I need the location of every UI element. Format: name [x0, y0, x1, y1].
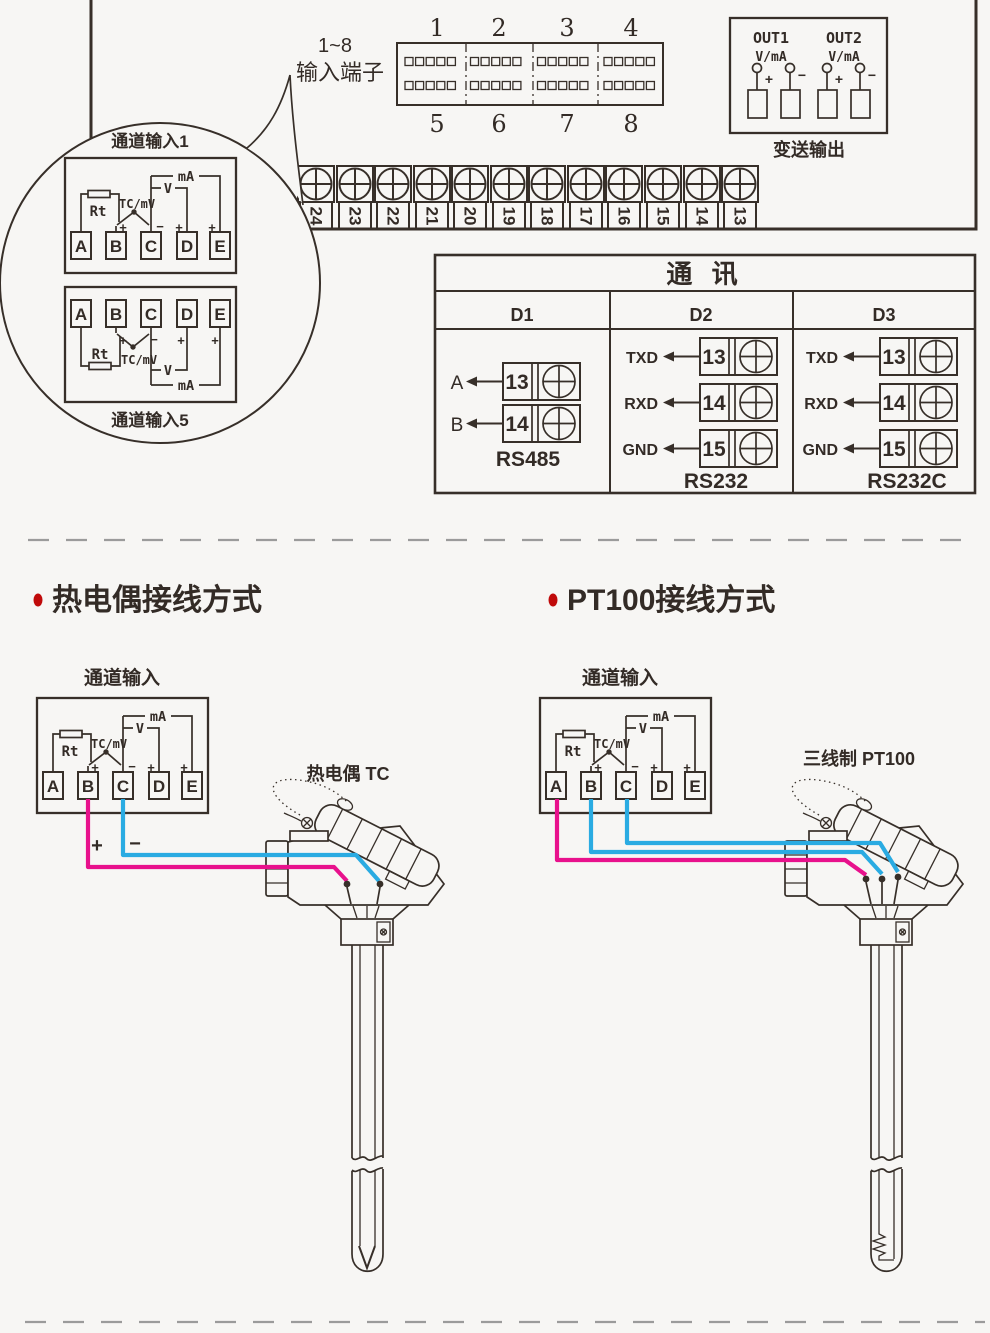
terminal-ref-number: 13	[702, 346, 725, 369]
terminal-letter: C	[145, 305, 157, 324]
terminal-ref-number: 15	[702, 438, 726, 461]
connector-number: 6	[491, 110, 506, 138]
out2-label: OUT2	[826, 29, 862, 47]
tc-sensor-label: 热电偶 TC	[307, 763, 390, 784]
terminal-number: 21	[423, 207, 442, 226]
terminal-number: 14	[693, 207, 712, 226]
input-terminal-range-label: 1~8	[318, 35, 352, 57]
v-label: V	[164, 363, 172, 379]
connector-number: 2	[491, 14, 506, 42]
terminal-number: 16	[615, 207, 634, 226]
minus-sign: −	[150, 332, 158, 347]
comm-col-header: D2	[689, 305, 712, 325]
thermocouple-diagram: 通道输入 热电偶 TC + −	[37, 666, 448, 1271]
comm-title: 通 讯	[666, 259, 743, 289]
tc-mv-label: TC/mV	[121, 353, 157, 367]
signal-label: TXD	[626, 350, 658, 367]
bullet-icon	[549, 594, 558, 607]
terminal-strip: 24 23 22 21 20 19 18 17 16 15 14 13	[298, 166, 758, 229]
signal-label: GND	[802, 442, 838, 459]
tc-junction-symbol	[359, 1246, 375, 1268]
tc-wire-minus: −	[129, 833, 141, 855]
terminal-letter: E	[214, 305, 225, 324]
bullet-icon	[34, 594, 43, 607]
rs232c-caption: RS232C	[867, 470, 946, 493]
pt100-channel-label: 通道输入	[582, 666, 658, 689]
connector-number: 7	[559, 110, 574, 138]
rs485-caption: RS485	[496, 448, 561, 471]
signal-label: RXD	[804, 396, 838, 413]
minus-sign: −	[868, 67, 876, 83]
pt100-diagram: 通道输入 三线制 PT100	[540, 666, 967, 1271]
terminal-ref-number: 14	[505, 413, 529, 436]
input-terminal-label: 输入端子	[296, 60, 384, 85]
terminal-ref-number: 14	[882, 392, 906, 415]
comm-table: 通 讯 D1 D2 D3 13 14 A B RS485 13 14 15 TX…	[435, 255, 975, 493]
tc-wire-plus: +	[91, 835, 103, 857]
terminal-letter: D	[181, 305, 193, 324]
plus-sign: +	[211, 333, 219, 348]
terminal-number: 17	[577, 207, 596, 226]
pt100-element-symbol	[873, 1170, 894, 1260]
terminal-number: 22	[384, 207, 403, 226]
terminal-ref-number: 15	[882, 438, 906, 461]
terminal-number: 13	[731, 207, 750, 226]
rs232-caption: RS232	[684, 470, 748, 493]
signal-label: TXD	[806, 350, 838, 367]
channel5-label: 通道输入5	[111, 410, 188, 430]
signal-label: RXD	[624, 396, 658, 413]
rt-label: Rt	[92, 347, 109, 363]
tc-channel-label: 通道输入	[84, 666, 160, 689]
out1-label: OUT1	[753, 29, 789, 47]
comm-col-header: D1	[510, 305, 533, 325]
signal-label: GND	[622, 442, 658, 459]
wiring-diagram-page: A B C D E mA V Rt TC/mV + − + +	[0, 0, 990, 1333]
signal-label: B	[451, 415, 464, 436]
terminal-ref-number: 13	[505, 371, 528, 394]
signal-label: A	[451, 373, 464, 394]
minus-sign: −	[798, 67, 806, 83]
terminal-letter: B	[110, 305, 122, 324]
terminal-number: 23	[346, 207, 365, 226]
terminal-number: 19	[500, 207, 519, 226]
plus-sign: +	[835, 71, 843, 87]
callout-balloon: 通道输入1 A B C D E + − + + Rt TC/mV V	[0, 75, 320, 443]
connector-number: 8	[623, 110, 638, 138]
output-box: OUT1 OUT2 V/mA V/mA + − + − 变送输出	[730, 18, 887, 160]
connector-number: 4	[623, 14, 638, 42]
wiring-diagram-svg: A B C D E mA V Rt TC/mV + − + +	[0, 0, 990, 1333]
connector-number: 3	[559, 14, 574, 42]
terminal-ref-number: 14	[702, 392, 726, 415]
terminal-letter: A	[75, 305, 87, 324]
terminal-number: 20	[461, 207, 480, 226]
pt100-heading: PT100接线方式	[567, 583, 775, 617]
out1-signal-type: V/mA	[755, 50, 786, 65]
input-connector: 1 2 3 4 5 6 7 8 1~8 输入端子	[296, 14, 663, 138]
terminal-number: 15	[654, 207, 673, 226]
plus-sign: +	[765, 71, 773, 87]
connector-number: 1	[429, 14, 444, 42]
terminal-ref-number: 13	[882, 346, 905, 369]
channel1-label: 通道输入1	[111, 131, 188, 151]
pt100-sensor-label: 三线制 PT100	[803, 748, 915, 769]
transmit-output-caption: 变送输出	[773, 139, 845, 160]
ma-label: mA	[178, 378, 194, 394]
plus-sign: +	[119, 333, 127, 348]
connector-number: 5	[429, 110, 444, 138]
out2-signal-type: V/mA	[828, 50, 859, 65]
tc-heading: 热电偶接线方式	[52, 583, 262, 617]
comm-col-header: D3	[872, 305, 895, 325]
terminal-number: 18	[538, 207, 557, 226]
plus-sign: +	[177, 333, 185, 348]
